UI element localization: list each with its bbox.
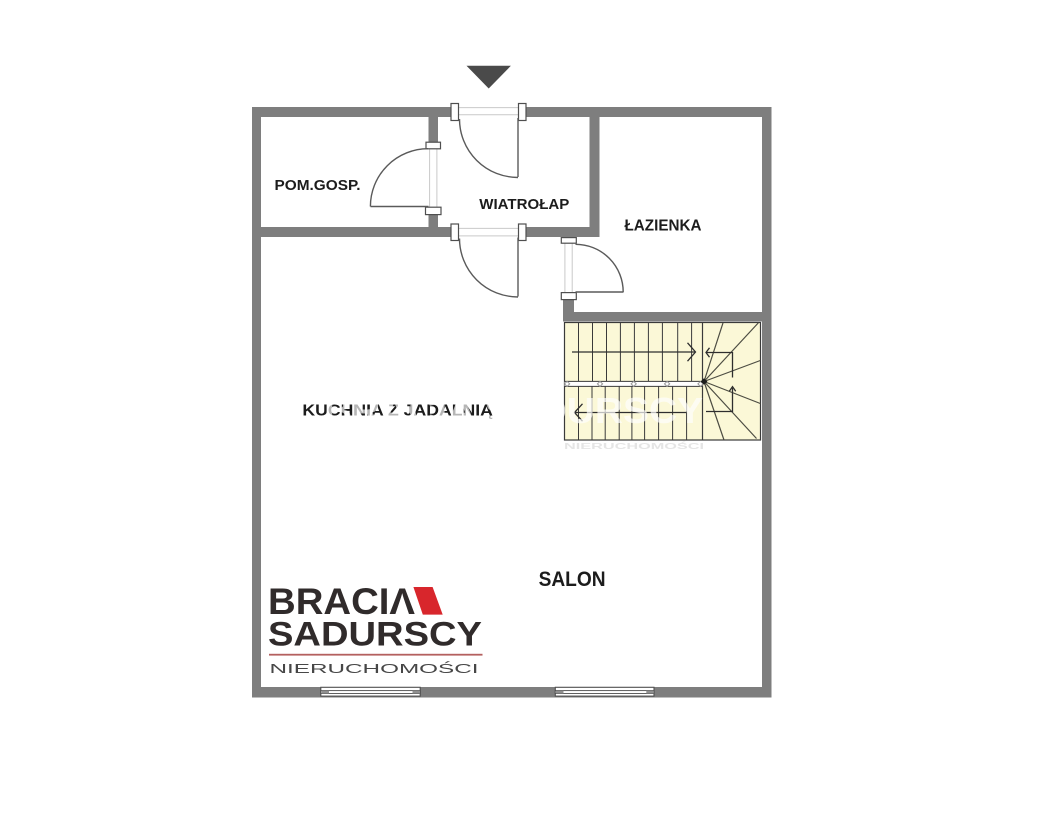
svg-text:NIERUCHOMOŚCI: NIERUCHOMOŚCI bbox=[270, 661, 479, 676]
svg-text:NIERUCHOMOŚCI: NIERUCHOMOŚCI bbox=[564, 442, 704, 451]
svg-text:SALON: SALON bbox=[539, 566, 606, 591]
svg-text:BRACIA SADURSCY: BRACIA SADURSCY bbox=[324, 390, 703, 431]
svg-text:WIATROŁAP: WIATROŁAP bbox=[479, 197, 569, 213]
svg-text:SADURSCY: SADURSCY bbox=[268, 615, 482, 653]
svg-text:POM.GOSP.: POM.GOSP. bbox=[275, 178, 361, 194]
svg-text:ŁAZIENKA: ŁAZIENKA bbox=[625, 217, 702, 234]
